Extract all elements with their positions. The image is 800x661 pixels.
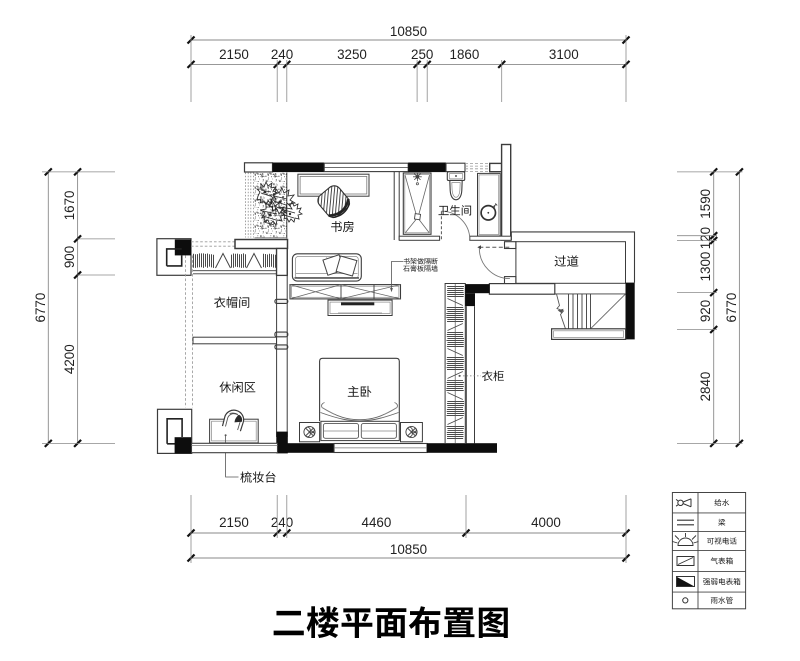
svg-text:1590: 1590 <box>698 189 713 219</box>
svg-text:4000: 4000 <box>531 515 561 530</box>
svg-text:250: 250 <box>411 47 433 62</box>
svg-text:1300: 1300 <box>698 252 713 282</box>
svg-text:1860: 1860 <box>450 47 480 62</box>
svg-text:2150: 2150 <box>219 47 249 62</box>
svg-text:900: 900 <box>62 246 77 268</box>
svg-text:6770: 6770 <box>724 293 739 323</box>
svg-text:10850: 10850 <box>390 24 427 39</box>
svg-text:2150: 2150 <box>219 515 249 530</box>
svg-text:240: 240 <box>271 515 293 530</box>
svg-text:3100: 3100 <box>549 47 579 62</box>
svg-text:240: 240 <box>271 47 293 62</box>
svg-text:3250: 3250 <box>337 47 367 62</box>
svg-text:2840: 2840 <box>698 372 713 402</box>
svg-text:4460: 4460 <box>362 515 392 530</box>
svg-text:1670: 1670 <box>62 191 77 221</box>
svg-text:6770: 6770 <box>33 293 48 323</box>
svg-text:4200: 4200 <box>62 344 77 374</box>
svg-text:10850: 10850 <box>390 542 427 557</box>
svg-text:920: 920 <box>698 300 713 322</box>
svg-text:120: 120 <box>698 227 713 249</box>
